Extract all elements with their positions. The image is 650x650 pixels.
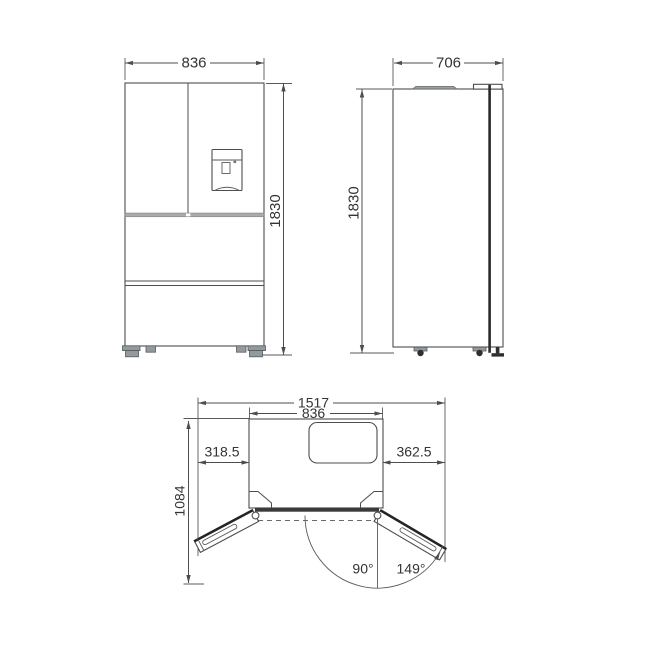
left-hinge-pin [252,512,259,519]
dispenser-button [234,161,237,163]
right-hinge-pin [374,512,381,519]
top-right-clearance-dimension: 362.5 [383,444,446,465]
front-left-foot-pad [126,351,139,357]
side-rear-wheel [476,350,482,356]
front-right-foot [248,346,266,351]
front-right-foot-pad [250,351,263,357]
top-left-door-open [194,510,259,553]
side-foot-base [492,353,505,356]
top-open-depth-label: 1084 [172,485,188,516]
side-height-label: 1830 [346,186,363,219]
top-left-clearance-label: 318.5 [204,444,239,460]
side-height-dimension: 1830 [346,89,395,353]
front-view: 836 1830 [123,55,293,357]
front-door-drawer-separator [125,213,264,217]
front-height-label: 1830 [267,194,284,227]
front-right-wheel [237,346,247,352]
side-depth-label: 706 [436,55,461,72]
side-foot-stem [496,347,500,353]
side-door-edge [488,85,491,353]
side-top-hinge-plate [474,84,503,89]
top-front-edge [255,508,379,512]
front-width-label: 836 [181,55,206,72]
front-left-wheel [146,346,156,352]
top-right-door-open [374,510,446,560]
front-left-foot [123,346,141,351]
side-view: 706 1830 [346,55,505,357]
front-height-dimension: 1830 [262,84,292,356]
refrigerator-dimension-diagram: 836 1830 [0,0,650,650]
water-dispenser [212,150,242,191]
side-top-cover [413,86,458,89]
door-angle-full-label: 149° [397,561,426,577]
top-view: 1517 836 1084 318.5 [172,395,447,589]
side-front-wheel [417,350,423,356]
diagram-svg: 836 1830 [0,0,650,650]
top-rear-unit [309,423,377,464]
side-cabinet-outline [393,89,503,347]
top-right-clearance-label: 362.5 [396,444,431,460]
top-left-clearance-dimension: 318.5 [198,444,250,465]
door-angle-90-label: 90° [352,561,373,577]
side-depth-dimension: 706 [393,55,503,87]
separator-notch [186,213,190,216]
door-swing-arc: 90° 149° [305,516,440,589]
front-feet [123,346,266,357]
front-width-dimension: 836 [125,55,264,81]
